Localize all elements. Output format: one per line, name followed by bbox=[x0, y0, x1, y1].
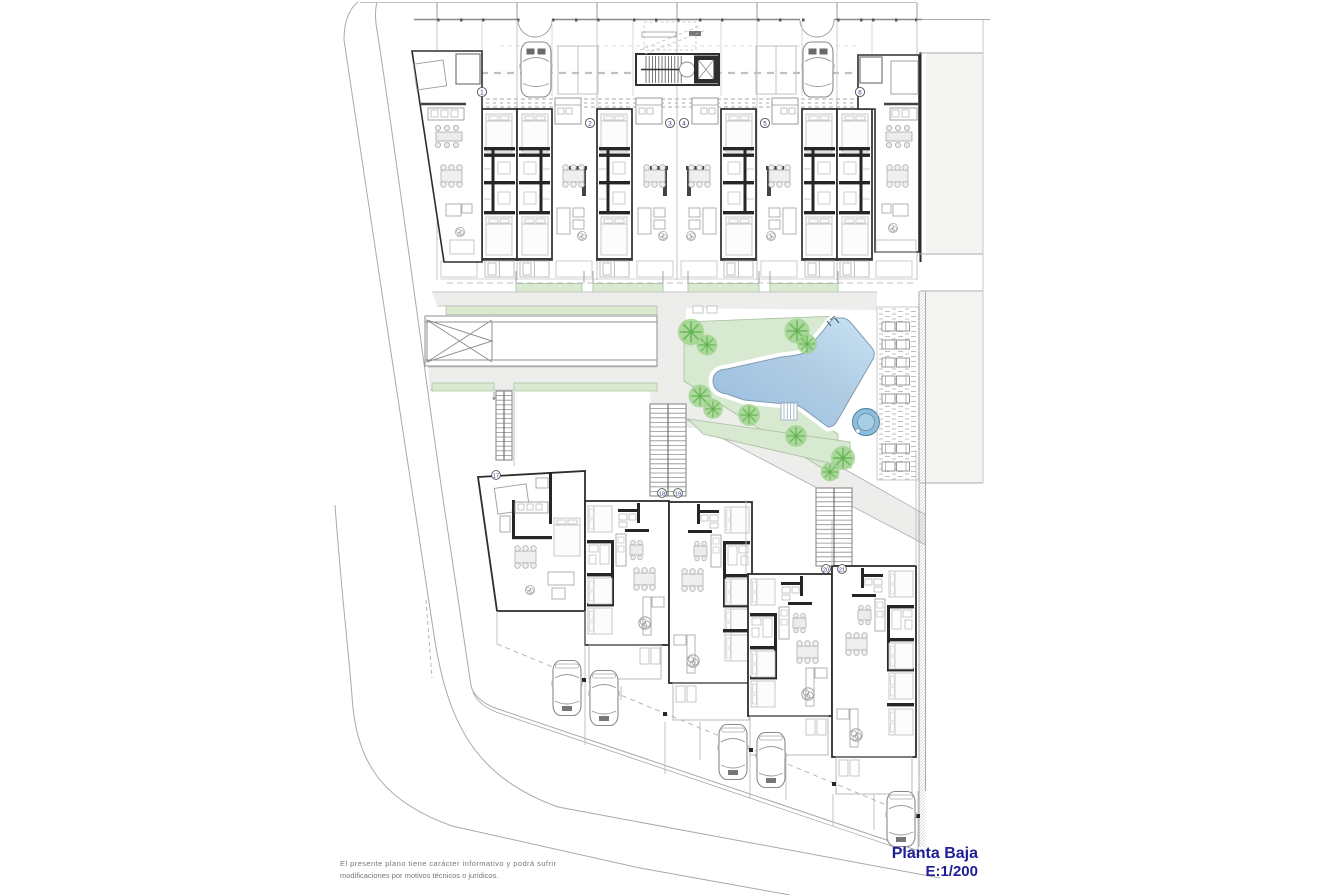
svg-text:17: 17 bbox=[493, 473, 499, 479]
svg-text:2: 2 bbox=[588, 120, 592, 127]
svg-text:Planta Baja: Planta Baja bbox=[892, 845, 978, 862]
svg-text:6: 6 bbox=[858, 89, 862, 96]
svg-text:1: 1 bbox=[480, 89, 484, 96]
svg-text:E:1/200: E:1/200 bbox=[925, 863, 978, 880]
svg-text:El presente plano tiene caráct: El presente plano tiene carácter informa… bbox=[340, 859, 557, 868]
svg-text:5: 5 bbox=[763, 120, 767, 127]
svg-text:modificaciones por motivos téc: modificaciones por motivos técnicos o ju… bbox=[340, 871, 498, 880]
svg-text:20: 20 bbox=[823, 567, 829, 573]
svg-text:19: 19 bbox=[675, 491, 681, 497]
svg-text:18: 18 bbox=[659, 491, 665, 497]
svg-text:21: 21 bbox=[839, 567, 845, 573]
svg-text:4: 4 bbox=[682, 120, 686, 127]
svg-text:3: 3 bbox=[668, 120, 672, 127]
